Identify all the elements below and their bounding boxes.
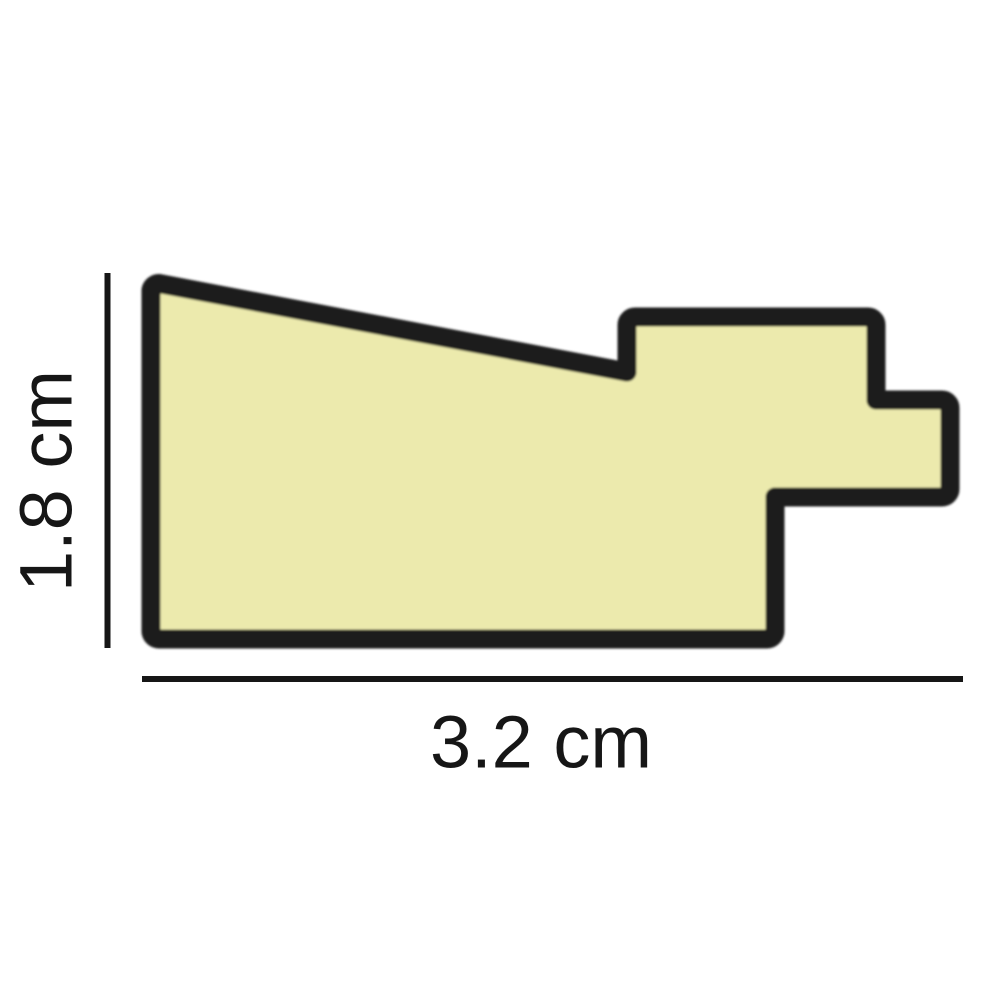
diagram-canvas: 1.8 cm 3.2 cm <box>0 0 1000 1000</box>
moulding-profile-shape <box>151 283 950 639</box>
width-dimension-label: 3.2 cm <box>430 701 652 784</box>
figure: 1.8 cm 3.2 cm <box>0 0 1000 1000</box>
height-dimension-label: 1.8 cm <box>5 370 88 592</box>
